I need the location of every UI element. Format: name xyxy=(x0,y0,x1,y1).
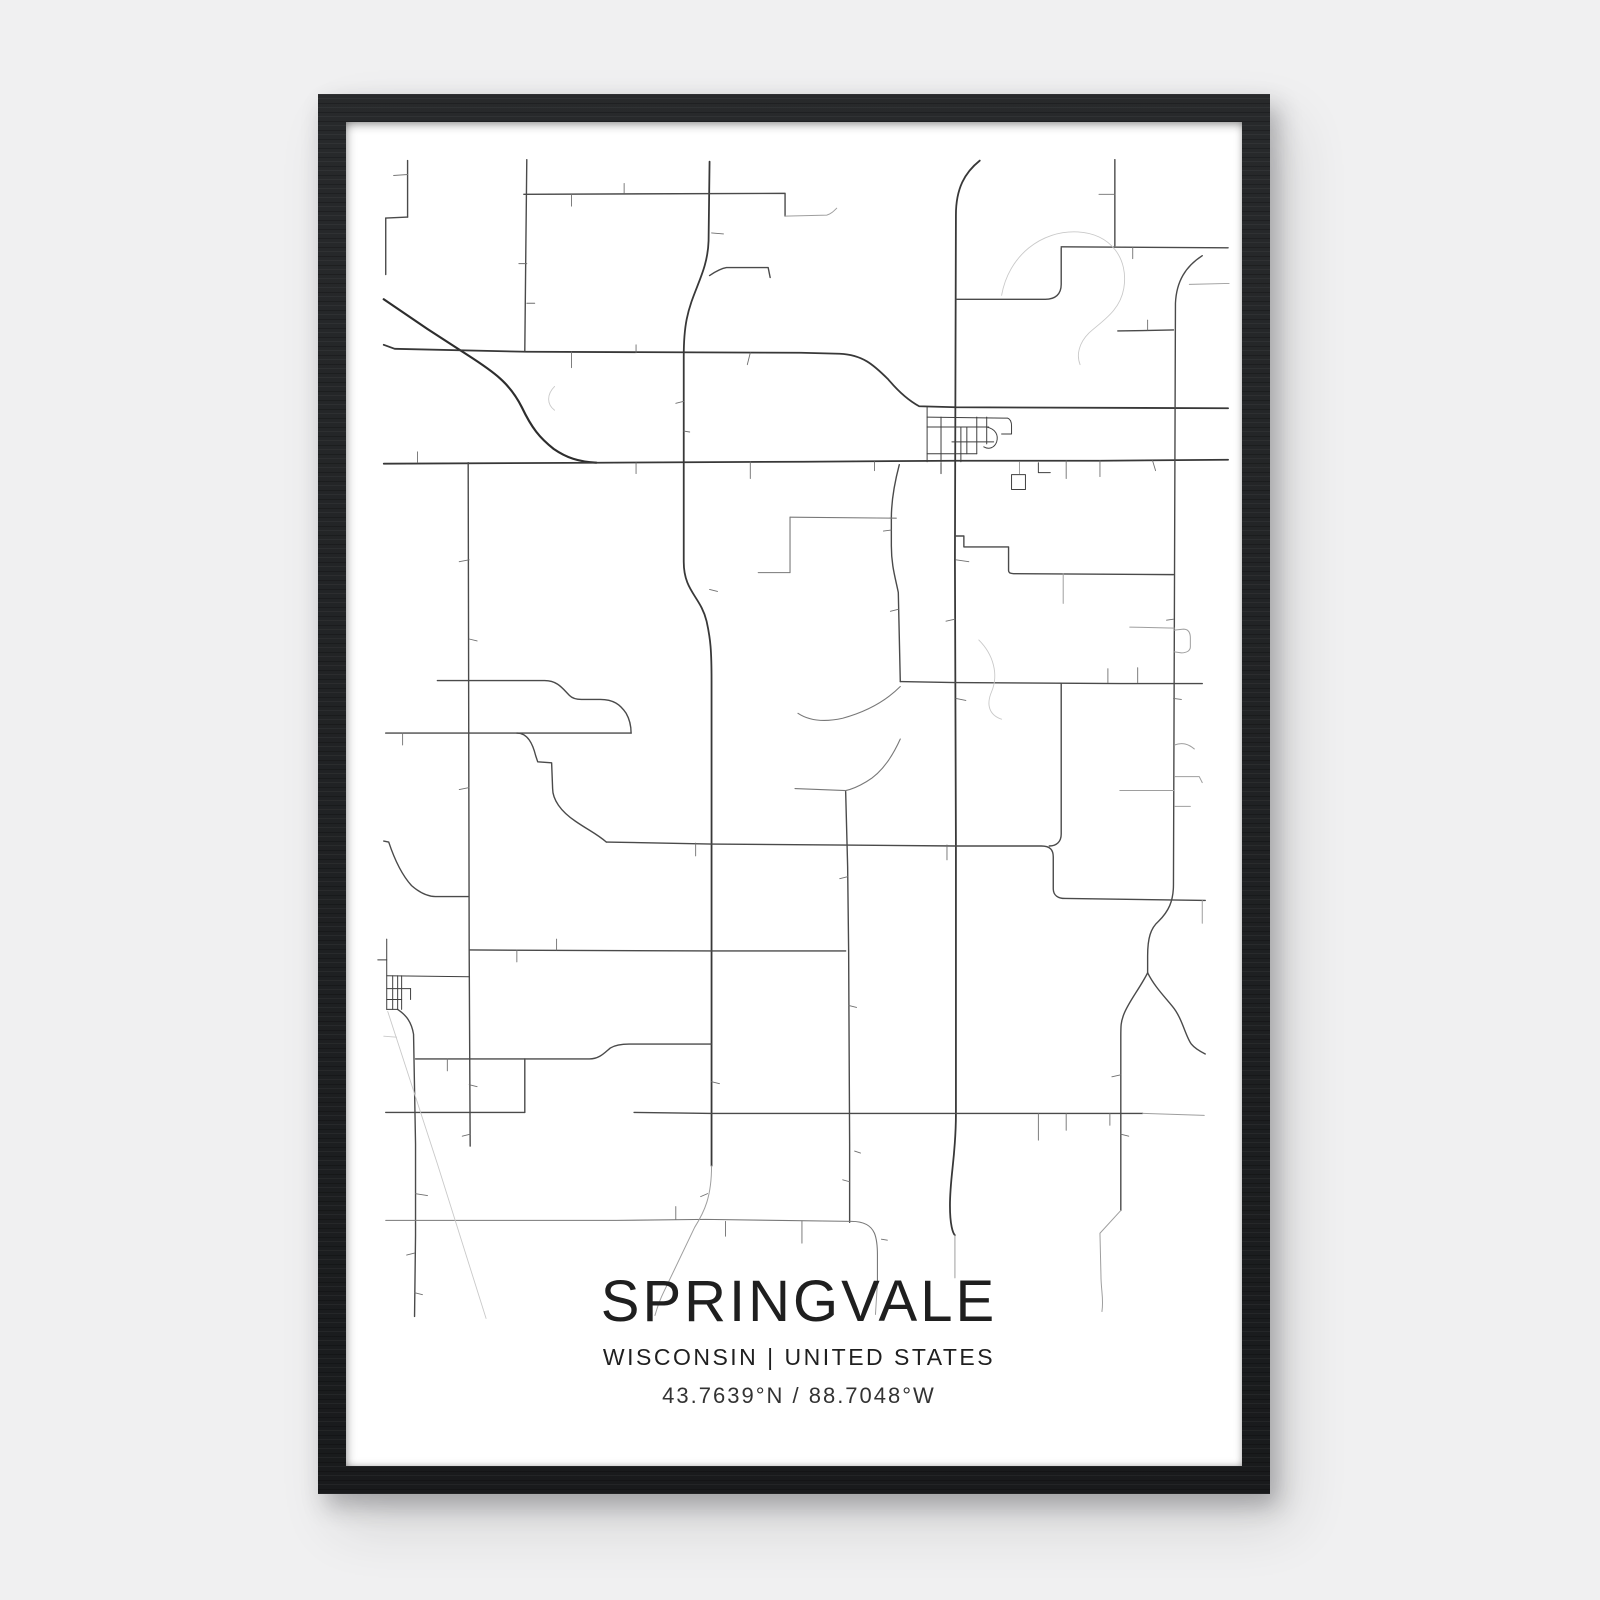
road-path xyxy=(1143,1113,1205,1115)
road-path xyxy=(956,536,1174,575)
road-path xyxy=(517,733,606,842)
road-stub xyxy=(843,1180,850,1182)
road-path xyxy=(384,841,468,896)
road-path xyxy=(525,160,527,351)
road-path xyxy=(384,345,1228,408)
road-path xyxy=(846,739,901,791)
road-path xyxy=(1174,744,1194,749)
road-path xyxy=(468,463,470,1146)
poster-title-block: SPRINGVALE WISCONSIN | UNITED STATES 43.… xyxy=(348,1270,1250,1409)
road-path xyxy=(684,162,712,1166)
road-path xyxy=(984,427,998,448)
road-stub xyxy=(469,639,477,641)
road-stub xyxy=(855,1151,861,1153)
road-path xyxy=(1038,463,1050,473)
road-path xyxy=(1012,475,1026,490)
road-path xyxy=(1049,684,1061,846)
road-path xyxy=(384,460,1228,464)
road-stub xyxy=(881,1239,887,1240)
road-path xyxy=(891,465,900,682)
road-path xyxy=(900,682,1202,684)
road-path xyxy=(1174,629,1190,653)
city-title: SPRINGVALE xyxy=(348,1270,1250,1334)
road-stub xyxy=(883,530,891,531)
road-map xyxy=(346,122,1242,1466)
road-path xyxy=(846,792,850,1223)
road-stub xyxy=(747,353,750,365)
road-stub xyxy=(849,1005,857,1007)
road-path xyxy=(384,299,597,462)
road-stub xyxy=(684,431,690,432)
road-path xyxy=(386,217,408,218)
road-stub xyxy=(946,619,955,621)
road-stub xyxy=(890,609,898,611)
road-path xyxy=(1121,973,1148,1211)
road-path xyxy=(416,1044,712,1059)
road-stub xyxy=(459,560,469,562)
road-path xyxy=(1189,283,1229,284)
road-stub xyxy=(710,589,718,591)
road-path xyxy=(1174,777,1202,783)
road-stub xyxy=(1153,461,1156,471)
road-stub xyxy=(1121,1134,1129,1136)
road-stub xyxy=(840,877,848,879)
road-path xyxy=(524,193,785,216)
road-path xyxy=(1118,330,1174,331)
road-stub xyxy=(1112,1075,1121,1077)
road-stub xyxy=(459,788,469,790)
road-path xyxy=(950,161,980,1236)
region-subtitle: WISCONSIN | UNITED STATES xyxy=(348,1344,1250,1371)
poster-paper xyxy=(346,122,1242,1466)
road-path xyxy=(437,681,631,733)
road-path xyxy=(790,517,896,518)
road-network xyxy=(378,160,1229,1319)
road-stub xyxy=(407,1253,415,1255)
road-path xyxy=(387,976,469,977)
road-stub xyxy=(712,1082,720,1084)
road-path xyxy=(1061,247,1228,248)
road-stub xyxy=(956,560,969,562)
road-path xyxy=(1130,627,1175,628)
road-path xyxy=(710,268,771,278)
page: { "poster": { "title": "SPRINGVALE", "su… xyxy=(0,0,1600,1600)
road-path xyxy=(469,950,845,951)
road-side-stubs xyxy=(403,183,1182,1294)
road-path xyxy=(798,687,900,721)
road-path xyxy=(384,1036,397,1037)
road-stub xyxy=(701,1194,708,1197)
road-stub xyxy=(462,1134,470,1136)
road-path xyxy=(795,789,846,791)
road-path xyxy=(549,386,555,410)
road-path xyxy=(979,640,1002,719)
road-path xyxy=(1148,256,1203,973)
road-path xyxy=(785,208,837,216)
road-path xyxy=(394,174,408,175)
road-path xyxy=(927,417,1011,434)
road-stub xyxy=(416,1194,428,1196)
road-path xyxy=(1148,973,1206,1054)
road-stub xyxy=(1167,619,1174,620)
road-stub xyxy=(956,698,966,700)
road-stub xyxy=(676,401,684,403)
road-stub xyxy=(712,233,724,234)
road-path xyxy=(1002,232,1125,365)
coordinates-text: 43.7639°N / 88.7048°W xyxy=(348,1383,1250,1409)
